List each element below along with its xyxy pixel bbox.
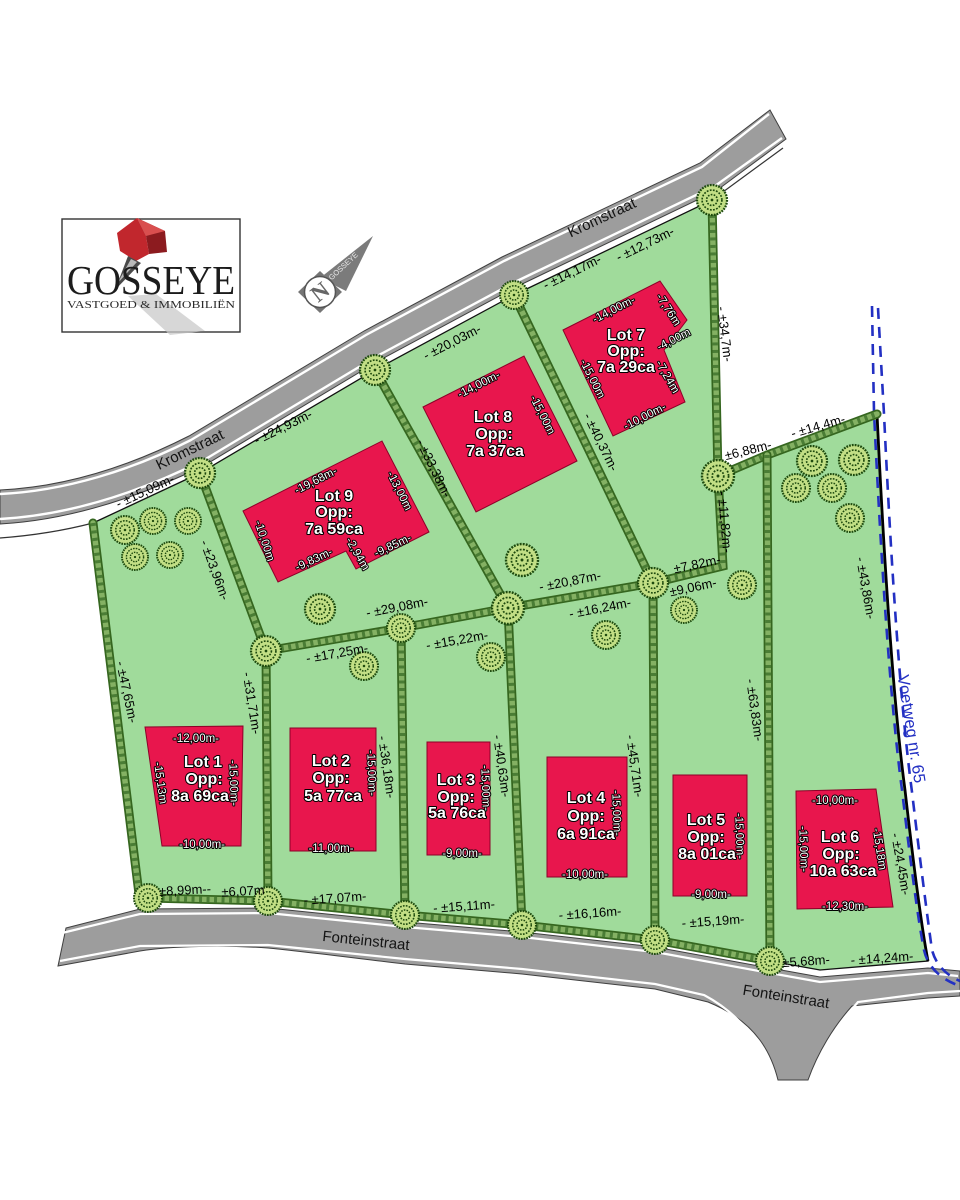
svg-text:-10,00m-: -10,00m- [812, 795, 858, 807]
svg-text:Lot 6: Lot 6 [821, 829, 859, 846]
svg-text:-15,00m-: -15,00m- [609, 790, 623, 837]
svg-text:5a 77ca: 5a 77ca [304, 788, 362, 805]
svg-text:7a 37ca: 7a 37ca [466, 443, 524, 460]
svg-text:Lot 9: Lot 9 [315, 488, 353, 505]
svg-text:-12,00m-: -12,00m- [173, 733, 219, 745]
svg-text:Opp:: Opp: [607, 343, 644, 360]
svg-text:-9,00m-: -9,00m- [442, 848, 482, 860]
svg-text:Lot 3: Lot 3 [437, 772, 475, 789]
svg-text:-15,00m-: -15,00m- [364, 750, 378, 797]
svg-text:±6,07m: ±6,07m [221, 882, 265, 899]
svg-text:Opp:: Opp: [822, 846, 859, 863]
svg-text:Lot 7: Lot 7 [607, 327, 645, 344]
svg-text:Lot 2: Lot 2 [312, 753, 350, 770]
svg-text:8a 69ca: 8a 69ca [171, 788, 229, 805]
svg-text:Lot 8: Lot 8 [474, 409, 512, 426]
svg-text:Lot 4: Lot 4 [567, 790, 605, 807]
svg-text:-15,00m-: -15,00m- [478, 765, 492, 812]
svg-text:Opp:: Opp: [185, 771, 222, 788]
svg-text:Opp:: Opp: [567, 808, 604, 825]
svg-text:-15,00m-: -15,00m- [226, 760, 240, 807]
svg-text:-12,30m-: -12,30m- [822, 901, 868, 913]
svg-text:Opp:: Opp: [437, 789, 474, 806]
svg-text:-10,00m-: -10,00m- [562, 869, 608, 881]
svg-text:Opp:: Opp: [315, 504, 352, 521]
svg-text:Opp:: Opp: [475, 426, 512, 443]
svg-text:-15,00m-: -15,00m- [732, 813, 746, 860]
svg-text:Lot 1: Lot 1 [184, 754, 222, 771]
svg-text:-9,00m-: -9,00m- [691, 889, 731, 901]
svg-text:-10,00m-: -10,00m- [179, 839, 225, 851]
svg-text:5a 76ca: 5a 76ca [428, 805, 486, 822]
svg-text:7a 29ca: 7a 29ca [597, 359, 655, 376]
svg-text:6a 91ca: 6a 91ca [557, 826, 615, 843]
svg-text:8a 01ca: 8a 01ca [678, 846, 736, 863]
svg-text:VASTGOED & IMMOBILIËN: VASTGOED & IMMOBILIËN [67, 299, 235, 311]
svg-text:Lot 5: Lot 5 [687, 812, 725, 829]
svg-text:10a 63ca: 10a 63ca [810, 863, 877, 880]
svg-text:-11,00m-: -11,00m- [308, 843, 353, 855]
svg-text:Opp:: Opp: [312, 770, 349, 787]
svg-text:±8,99m--: ±8,99m-- [159, 881, 212, 899]
svg-text:Opp:: Opp: [687, 829, 724, 846]
svg-text:-15,00m-: -15,00m- [796, 826, 810, 873]
svg-text:GOSSEYE: GOSSEYE [67, 257, 235, 303]
